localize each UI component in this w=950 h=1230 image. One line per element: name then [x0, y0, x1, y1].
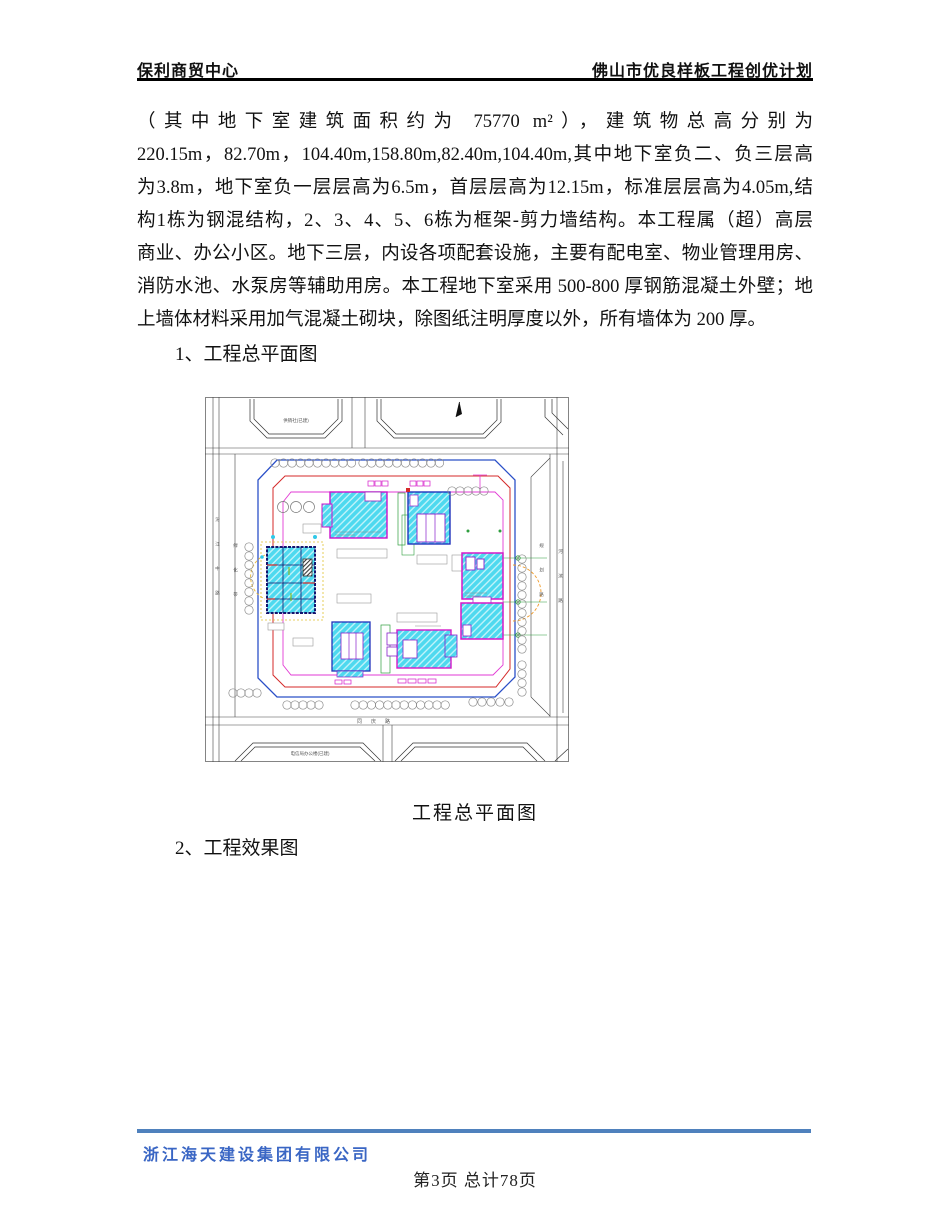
paragraph-line: 商业、办公小区。地下三层，内设各项配套设施，主要有配电室、物业管理用房、 — [137, 238, 813, 271]
label-block-bottom: 电信局办公楼(已建) — [291, 750, 330, 757]
label-block-top-left: 供销社(已建) — [283, 417, 309, 424]
footer-company: 浙江海天建设集团有限公司 — [143, 1141, 371, 1165]
label-road-right-outer: 规划路 — [539, 542, 545, 617]
paragraph-line: 构1栋为钢混结构，2、3、4、5、6栋为框架-剪力墙结构。本工程属（超）高层 — [137, 205, 813, 238]
paragraph-line: （其中地下室建筑面积约为 75770 m²），建筑物总高分别为 — [137, 106, 813, 139]
body-paragraph: （其中地下室建筑面积约为 75770 m²），建筑物总高分别为 220.15m，… — [137, 106, 813, 337]
paragraph-line: 消防水池、水泵房等辅助用房。本工程地下室采用 500-800 厚钢筋混凝土外壁；… — [137, 271, 813, 304]
label-road-right-inner: 河滨路 — [558, 548, 564, 623]
paragraph-line: 为3.8m，地下室负一层层高为6.5m，首层层高为12.15m，标准层层高为4.… — [137, 172, 813, 205]
label-road-left-inner: 绿化带 — [233, 542, 239, 617]
section-item-1: 1、工程总平面图 — [137, 338, 813, 371]
section-item-2: 2、工程效果图 — [137, 832, 813, 865]
plan-frame — [206, 398, 569, 762]
site-plan-figure: 供销社(已建) 电信局办公楼(已建) 同庆路 汾江中路 绿化带 规划路 河滨路 — [205, 397, 569, 762]
paragraph-line: 220.15m，82.70m，104.40m,158.80m,82.40m,10… — [137, 139, 813, 172]
footer-divider — [137, 1129, 811, 1133]
label-road-left-outer: 汾江中路 — [215, 516, 221, 615]
footer-page-number: 第3页 总计78页 — [137, 1166, 813, 1191]
paragraph-line: 上墙体材料采用加气混凝土砌块，除图纸注明厚度以外，所有墙体为 200 厚。 — [137, 304, 813, 337]
figure-caption: 工程总平面图 — [137, 798, 813, 830]
label-road-bottom: 同庆路 — [357, 718, 399, 725]
header-divider — [137, 78, 813, 81]
